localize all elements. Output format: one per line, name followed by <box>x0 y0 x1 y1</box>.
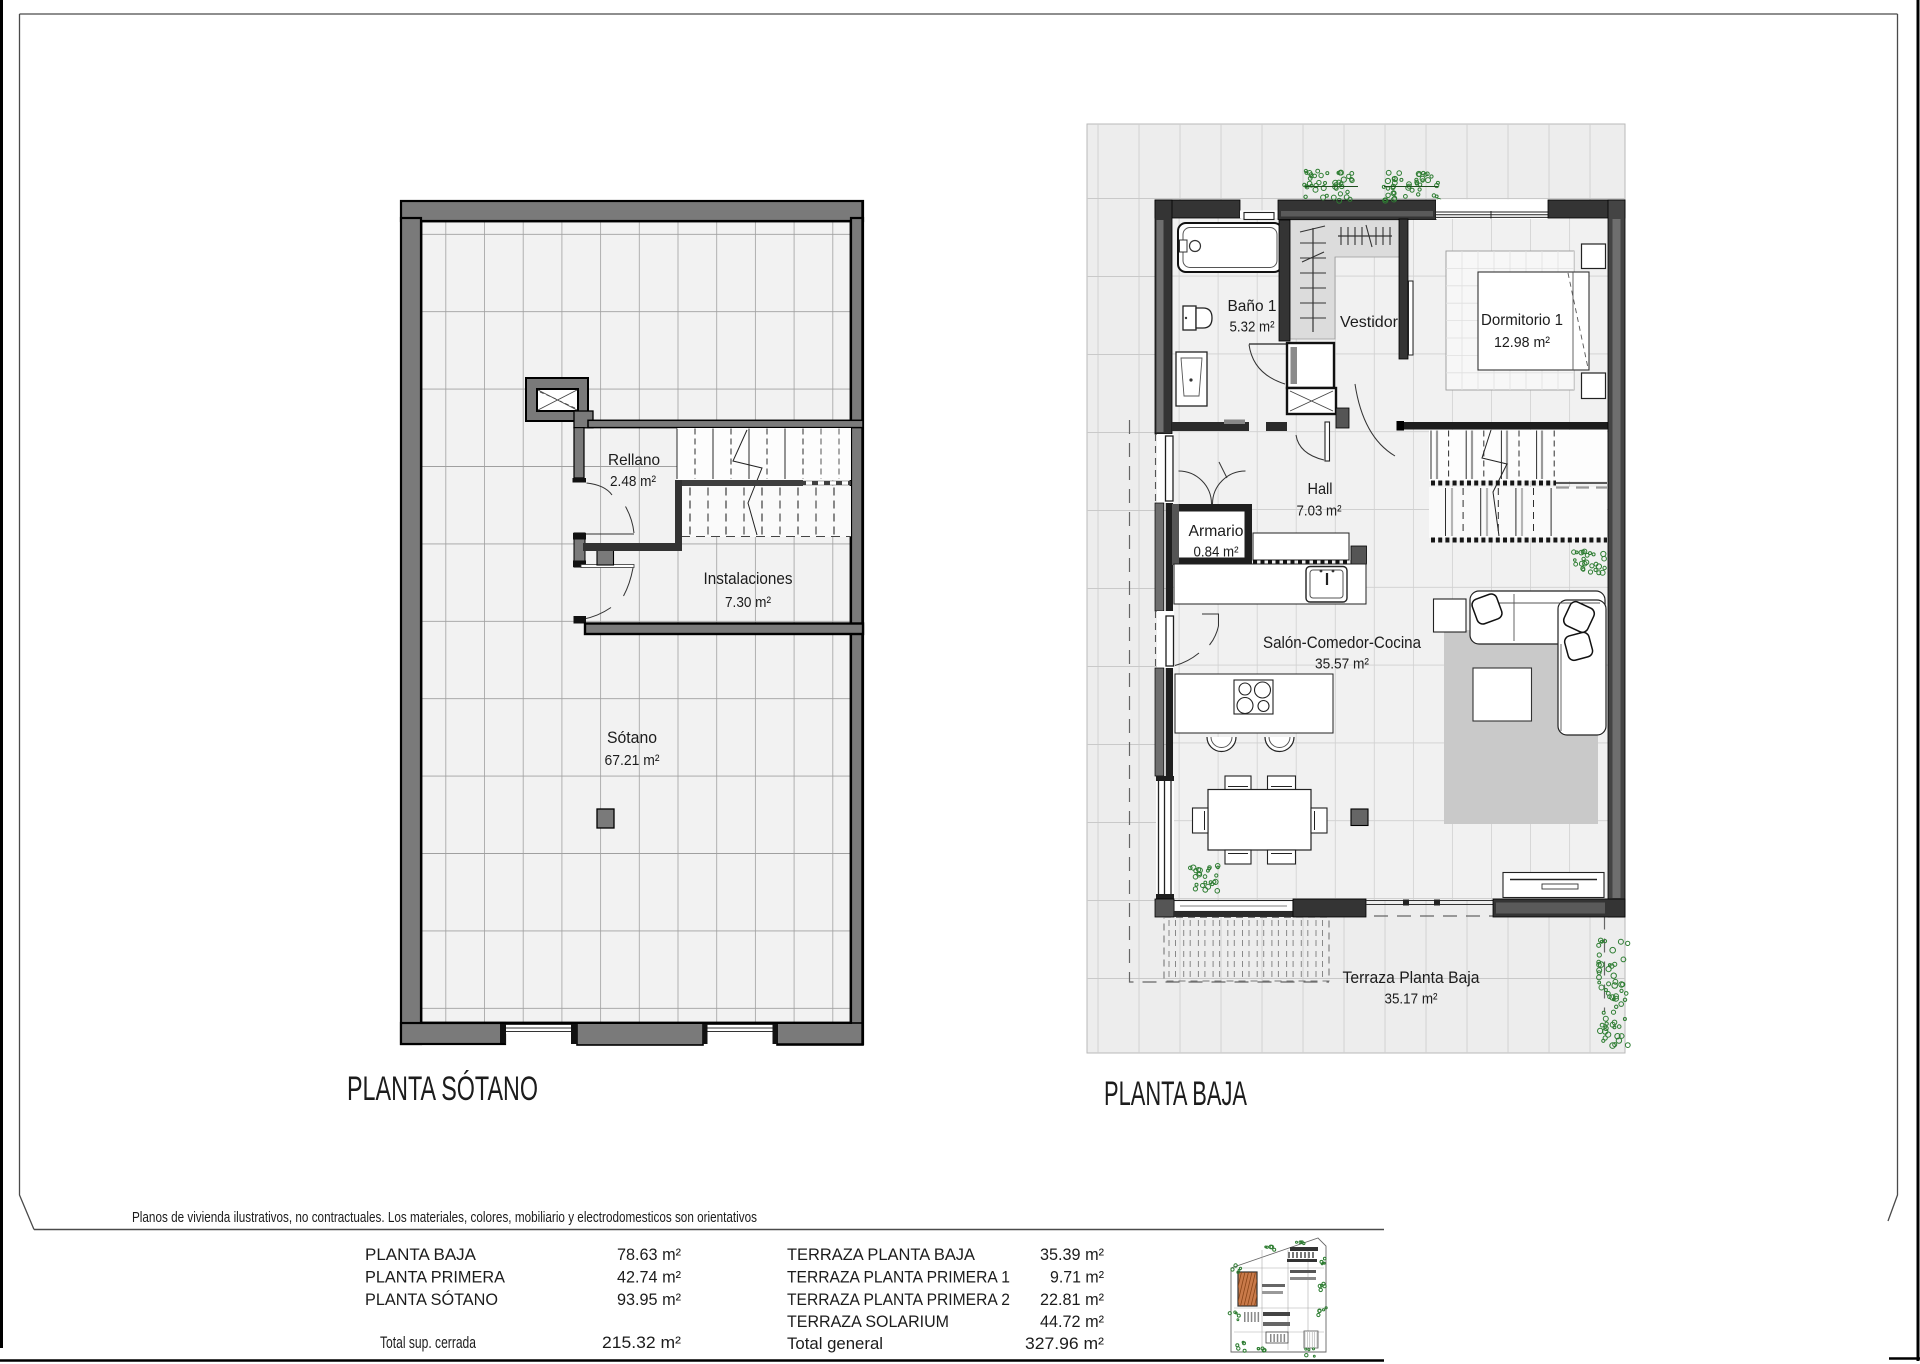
svg-text:PLANTA SÓTANO: PLANTA SÓTANO <box>365 1290 498 1309</box>
svg-text:TERRAZA SOLARIUM: TERRAZA SOLARIUM <box>787 1312 949 1331</box>
svg-text:Baño 1: Baño 1 <box>1228 298 1277 315</box>
svg-text:Terraza Planta Baja: Terraza Planta Baja <box>1343 969 1481 987</box>
svg-text:Planos de vivienda ilustrativo: Planos de vivienda ilustrativos, no cont… <box>132 1210 757 1226</box>
svg-text:7.30 m²: 7.30 m² <box>725 594 771 611</box>
svg-text:Sótano: Sótano <box>607 729 657 747</box>
svg-text:44.72 m²: 44.72 m² <box>1040 1312 1104 1331</box>
svg-text:PLANTA BAJA: PLANTA BAJA <box>1104 1075 1247 1113</box>
svg-text:2.48 m²: 2.48 m² <box>610 473 656 490</box>
svg-text:35.57 m²: 35.57 m² <box>1315 656 1369 673</box>
svg-text:327.96 m²: 327.96 m² <box>1025 1334 1104 1353</box>
svg-text:78.63 m²: 78.63 m² <box>617 1245 681 1264</box>
svg-text:7.03 m²: 7.03 m² <box>1297 503 1342 520</box>
svg-text:Total sup. cerrada: Total sup. cerrada <box>380 1333 476 1352</box>
svg-text:PLANTA SÓTANO: PLANTA SÓTANO <box>347 1070 538 1108</box>
svg-text:215.32 m²: 215.32 m² <box>602 1333 681 1352</box>
svg-text:Armario: Armario <box>1189 523 1244 540</box>
svg-text:TERRAZA PLANTA BAJA: TERRAZA PLANTA BAJA <box>787 1245 976 1264</box>
svg-text:35.39 m²: 35.39 m² <box>1040 1245 1104 1264</box>
svg-text:12.98 m²: 12.98 m² <box>1494 334 1550 351</box>
svg-text:9.71 m²: 9.71 m² <box>1050 1268 1104 1287</box>
svg-text:5.32 m²: 5.32 m² <box>1230 319 1275 336</box>
svg-text:0.84 m²: 0.84 m² <box>1194 545 1239 561</box>
svg-text:35.17 m²: 35.17 m² <box>1385 991 1438 1008</box>
svg-text:67.21 m²: 67.21 m² <box>605 752 660 769</box>
svg-text:TERRAZA PLANTA PRIMERA 2: TERRAZA PLANTA PRIMERA 2 <box>787 1290 1010 1309</box>
svg-text:Instalaciones: Instalaciones <box>704 570 793 588</box>
svg-text:42.74 m²: 42.74 m² <box>617 1268 681 1287</box>
svg-text:Hall: Hall <box>1308 481 1333 498</box>
svg-text:Total general: Total general <box>787 1334 883 1353</box>
svg-text:Rellano: Rellano <box>608 452 660 469</box>
svg-text:PLANTA PRIMERA: PLANTA PRIMERA <box>365 1268 506 1287</box>
svg-text:22.81 m²: 22.81 m² <box>1040 1290 1104 1309</box>
svg-text:TERRAZA PLANTA PRIMERA 1: TERRAZA PLANTA PRIMERA 1 <box>787 1268 1010 1287</box>
svg-text:93.95 m²: 93.95 m² <box>617 1290 681 1309</box>
svg-text:Dormitorio 1: Dormitorio 1 <box>1481 312 1563 329</box>
svg-text:Vestidor: Vestidor <box>1340 314 1399 331</box>
svg-text:Salón-Comedor-Cocina: Salón-Comedor-Cocina <box>1263 634 1422 652</box>
svg-text:PLANTA BAJA: PLANTA BAJA <box>365 1245 477 1264</box>
